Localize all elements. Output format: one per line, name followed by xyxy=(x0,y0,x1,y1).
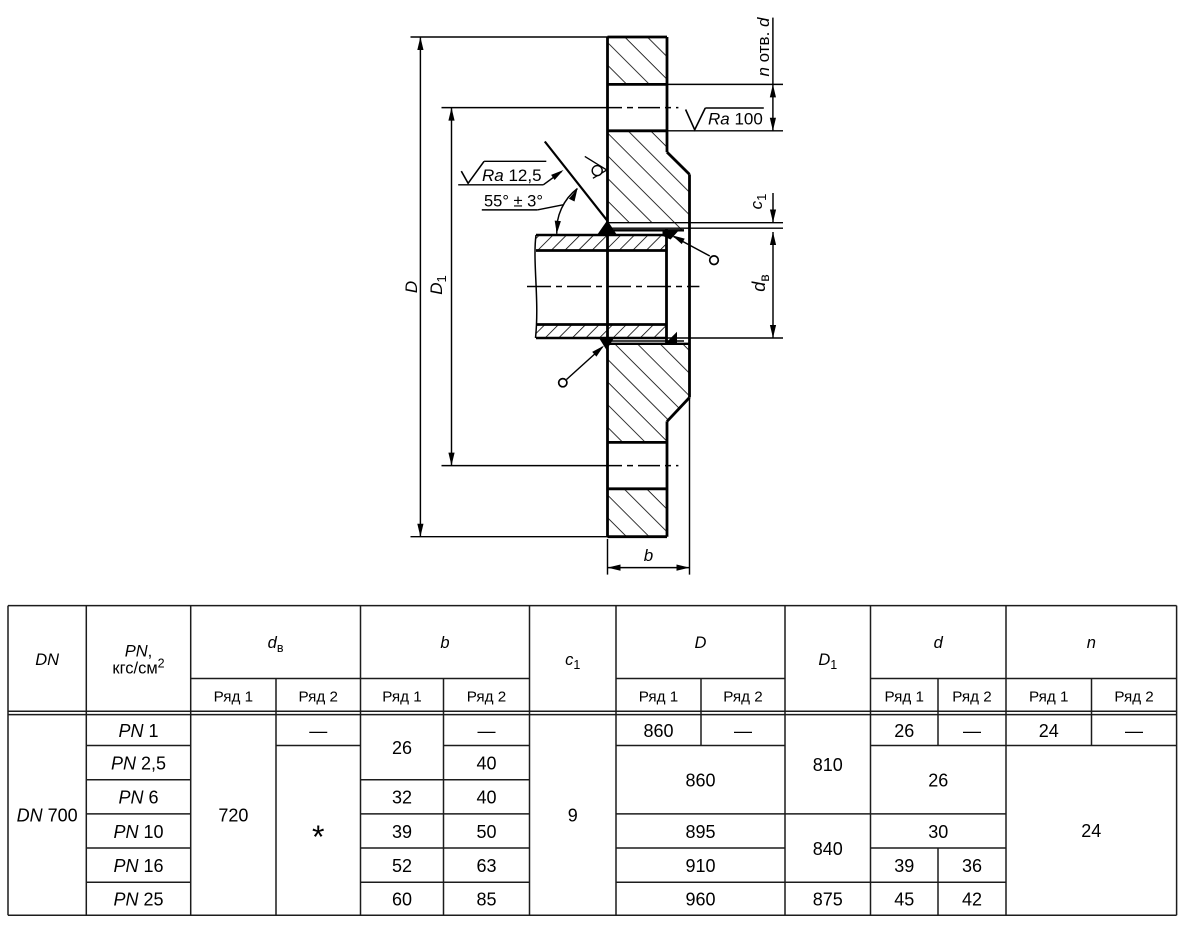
svg-text:840: 840 xyxy=(813,839,843,859)
svg-text:—: — xyxy=(478,721,496,741)
svg-text:Ra 12,5: Ra 12,5 xyxy=(482,166,542,185)
svg-text:D1: D1 xyxy=(818,651,837,672)
svg-text:720: 720 xyxy=(218,806,248,826)
svg-text:85: 85 xyxy=(476,890,496,910)
svg-text:Ряд 1: Ряд 1 xyxy=(885,688,924,705)
svg-text:—: — xyxy=(734,721,752,741)
svg-text:D: D xyxy=(402,281,421,293)
svg-text:*: * xyxy=(312,819,324,855)
svg-text:PN 2,5: PN 2,5 xyxy=(111,753,166,773)
svg-text:кгс/см2: кгс/см2 xyxy=(112,656,164,677)
svg-text:Ряд 1: Ряд 1 xyxy=(214,688,253,705)
svg-text:26: 26 xyxy=(928,771,948,791)
svg-text:Ряд 2: Ряд 2 xyxy=(467,688,506,705)
svg-text:PN 6: PN 6 xyxy=(118,788,158,808)
svg-text:24: 24 xyxy=(1039,721,1059,741)
svg-text:50: 50 xyxy=(476,822,496,842)
svg-text:Ряд 1: Ряд 1 xyxy=(1029,688,1068,705)
svg-text:810: 810 xyxy=(813,755,843,775)
svg-text:Ряд 1: Ряд 1 xyxy=(639,688,678,705)
svg-text:PN 25: PN 25 xyxy=(113,890,163,910)
svg-text:32: 32 xyxy=(392,788,412,808)
svg-text:895: 895 xyxy=(685,822,715,842)
svg-text:Ряд 1: Ряд 1 xyxy=(382,688,421,705)
svg-text:860: 860 xyxy=(685,771,715,791)
svg-text:—: — xyxy=(309,721,327,741)
svg-text:dв: dв xyxy=(268,634,284,655)
svg-text:PN,: PN, xyxy=(125,643,153,661)
svg-text:960: 960 xyxy=(685,890,715,910)
svg-text:Ряд 2: Ряд 2 xyxy=(1114,688,1153,705)
svg-text:24: 24 xyxy=(1081,821,1101,841)
svg-text:36: 36 xyxy=(962,856,982,876)
svg-text:910: 910 xyxy=(685,856,715,876)
svg-text:Ряд 2: Ряд 2 xyxy=(299,688,338,705)
svg-text:DN 700: DN 700 xyxy=(17,806,78,826)
svg-text:b: b xyxy=(440,634,449,652)
svg-text:860: 860 xyxy=(643,721,673,741)
svg-text:c1: c1 xyxy=(565,651,580,672)
svg-text:60: 60 xyxy=(392,890,412,910)
svg-text:875: 875 xyxy=(813,890,843,910)
svg-text:40: 40 xyxy=(476,753,496,773)
svg-text:42: 42 xyxy=(962,890,982,910)
svg-text:—: — xyxy=(1125,721,1143,741)
svg-text:63: 63 xyxy=(476,856,496,876)
svg-text:n отв. d: n отв. d xyxy=(754,17,773,77)
svg-text:PN 10: PN 10 xyxy=(113,822,163,842)
svg-text:b: b xyxy=(644,546,653,565)
svg-text:26: 26 xyxy=(894,721,914,741)
svg-text:26: 26 xyxy=(392,738,412,758)
svg-text:Ra 100: Ra 100 xyxy=(708,110,763,129)
svg-text:Ряд 2: Ряд 2 xyxy=(723,688,762,705)
svg-text:DN: DN xyxy=(35,651,59,669)
svg-text:d: d xyxy=(934,634,944,652)
svg-text:40: 40 xyxy=(476,788,496,808)
svg-text:39: 39 xyxy=(894,856,914,876)
svg-text:Ряд 2: Ряд 2 xyxy=(952,688,991,705)
svg-text:52: 52 xyxy=(392,856,412,876)
svg-text:n: n xyxy=(1087,634,1096,652)
svg-text:c1: c1 xyxy=(747,194,769,210)
svg-text:PN 16: PN 16 xyxy=(113,856,163,876)
svg-text:55° ± 3°: 55° ± 3° xyxy=(484,193,543,211)
svg-text:39: 39 xyxy=(392,822,412,842)
svg-text:—: — xyxy=(963,721,981,741)
svg-text:PN 1: PN 1 xyxy=(118,721,158,741)
svg-text:9: 9 xyxy=(568,806,578,826)
svg-text:dв: dв xyxy=(749,274,772,291)
svg-text:D1: D1 xyxy=(427,275,449,295)
svg-text:45: 45 xyxy=(894,890,914,910)
svg-text:30: 30 xyxy=(928,822,948,842)
svg-text:D: D xyxy=(695,634,707,652)
